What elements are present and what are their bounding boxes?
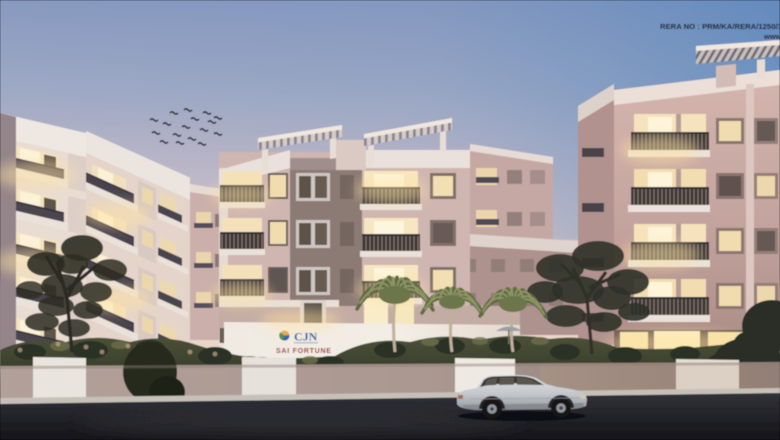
svg-text:RERA NO : PRM/KA/RERA/1250/30: RERA NO : PRM/KA/RERA/1250/30 — [660, 22, 780, 31]
svg-text:CJN: CJN — [294, 330, 318, 344]
svg-text:www.cjn: www.cjn — [763, 32, 780, 41]
svg-text:SAI FORTUNE: SAI FORTUNE — [276, 348, 332, 355]
